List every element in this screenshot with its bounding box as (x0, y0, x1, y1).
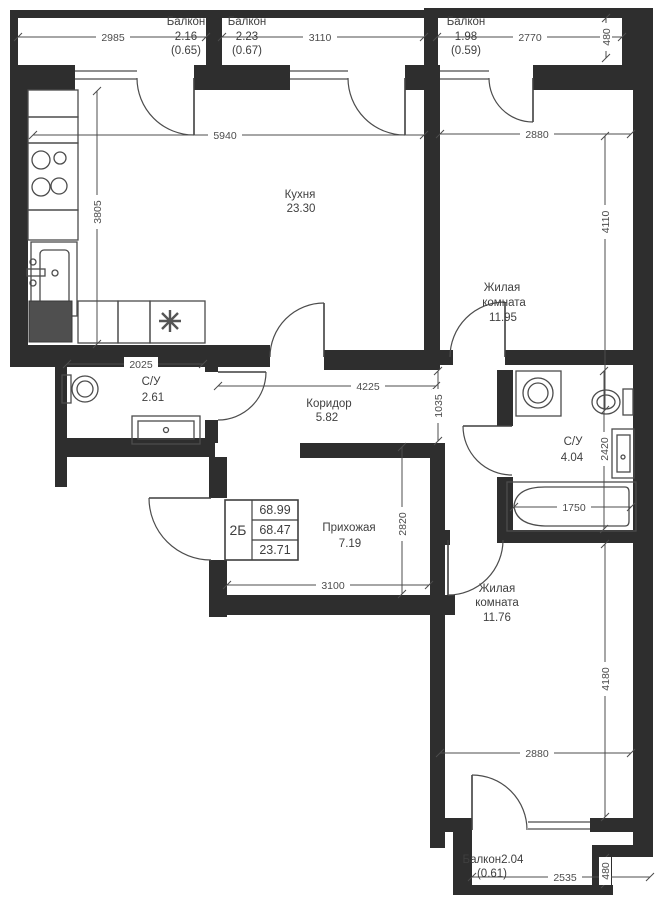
counter-icon (28, 90, 78, 117)
wall-living2-south-2 (590, 818, 653, 832)
svg-text:2880: 2880 (525, 129, 549, 141)
unit-area-living: 23.71 (259, 543, 290, 557)
wall-hallway-right (430, 443, 445, 605)
svg-text:4225: 4225 (356, 381, 380, 393)
svg-text:(0.59): (0.59) (451, 45, 481, 57)
wall-kitchen-south-2 (324, 350, 440, 370)
svg-text:2820: 2820 (397, 512, 409, 536)
wall-balcony-divider-2 (424, 8, 438, 65)
svg-text:1035: 1035 (433, 394, 445, 418)
svg-text:Балкон: Балкон (447, 16, 486, 28)
svg-text:4180: 4180 (600, 667, 612, 691)
svg-text:(0.67): (0.67) (232, 45, 262, 57)
window-kitchen-1 (75, 71, 137, 79)
svg-text:Коридор: Коридор (306, 398, 351, 410)
wall-bath1-bottom (55, 438, 215, 457)
svg-text:2.61: 2.61 (142, 392, 164, 404)
kitchen-fixtures (27, 90, 205, 343)
svg-text:2880: 2880 (525, 748, 549, 760)
svg-text:(0.65): (0.65) (171, 45, 201, 57)
svg-text:2025: 2025 (129, 359, 153, 371)
window-kitchen-2 (290, 71, 348, 79)
wall-balcony4-bottom (453, 885, 613, 895)
counter-icon (118, 301, 150, 343)
washing-machine-icon (516, 371, 561, 416)
unit-info-box: 2Б 68.99 68.47 23.71 (225, 500, 298, 560)
dim-corridor-width: 4225 (214, 379, 440, 393)
room-label-corridor: Коридор 5.82 (306, 398, 351, 424)
svg-text:3100: 3100 (321, 580, 345, 592)
svg-text:1.98: 1.98 (455, 31, 477, 43)
svg-text:1750: 1750 (562, 502, 586, 514)
dim-corridor-opening: 1035 (432, 367, 445, 445)
svg-text:2535: 2535 (553, 872, 577, 884)
counter-icon (28, 117, 78, 143)
toilet-icon (62, 375, 98, 403)
svg-text:2.23: 2.23 (236, 31, 258, 43)
dim-kitchen-height: 3805 (91, 87, 104, 348)
room-label-hallway: Прихожая 7.19 (322, 522, 375, 550)
door-bath1 (218, 372, 266, 420)
door-kitchen-balcony-1 (137, 78, 194, 135)
wall-kitchen-living1 (424, 65, 440, 365)
svg-text:Кухня: Кухня (285, 189, 316, 201)
door-kitchen-balcony-2 (348, 78, 405, 135)
dim-bath2-height: 2420 (598, 367, 611, 533)
door-living1-balcony (489, 78, 533, 122)
wall-bath2-west-2 (497, 477, 513, 533)
wall-outer-right (633, 60, 653, 848)
wall-living1-south-2 (505, 350, 633, 365)
wall-bath2-west-1 (497, 370, 513, 426)
wall-north-1 (10, 65, 75, 90)
appliance-asterisk-icon (150, 301, 205, 343)
stove-icon (28, 143, 78, 210)
counter-icon (78, 301, 118, 343)
floor-plan-canvas: 2985 3110 2770 480 5940 2880 (0, 0, 672, 900)
svg-text:5.82: 5.82 (316, 412, 338, 424)
dim-balcony4-depth: 480 (599, 854, 612, 888)
wall-bath2-south (497, 530, 653, 543)
svg-text:480: 480 (601, 28, 613, 46)
room-label-bath1: С/У 2.61 (142, 376, 165, 404)
svg-text:Жилая: Жилая (479, 583, 515, 595)
unit-area-total: 68.99 (259, 503, 290, 517)
svg-text:Балкон2.04: Балкон2.04 (463, 854, 525, 866)
wall-north-2 (194, 65, 290, 90)
counter-icon (28, 210, 78, 240)
window-living1 (440, 71, 489, 79)
svg-text:Балкон: Балкон (228, 16, 267, 28)
svg-text:Жилая: Жилая (484, 282, 520, 294)
room-label-kitchen: Кухня 23.30 (285, 189, 316, 215)
wall-living1-south-1 (440, 350, 453, 365)
wall-living2-south-1 (438, 818, 472, 832)
dim-living1-height: 4110 (599, 132, 612, 414)
wall-bath1-right-1 (205, 355, 218, 372)
walls (10, 8, 653, 895)
bath1-fixtures (62, 375, 200, 444)
unit-area-reduced: 68.47 (259, 523, 290, 537)
svg-text:комната: комната (475, 597, 519, 609)
svg-text:11.76: 11.76 (483, 612, 511, 624)
room-label-bath2: С/У 4.04 (561, 436, 584, 464)
dim-living2-height: 4180 (599, 540, 612, 821)
door-kitchen-corridor (270, 303, 324, 357)
svg-text:23.30: 23.30 (287, 203, 316, 215)
wall-outer-left (10, 90, 28, 367)
svg-text:С/У: С/У (564, 436, 584, 448)
svg-text:5940: 5940 (213, 130, 237, 142)
wall-hallway-north (300, 443, 440, 458)
dim-hallway-height: 2820 (396, 443, 409, 598)
wall-hallway-bottom (209, 595, 455, 615)
svg-text:4.04: 4.04 (561, 452, 584, 464)
room-label-living2: Жилая комната 11.76 (475, 583, 519, 624)
wall-balcony-divider-1 (206, 10, 222, 65)
svg-text:3110: 3110 (309, 32, 332, 44)
wall-hallway-left-1 (209, 457, 227, 498)
sink-icon (612, 429, 634, 478)
svg-text:(0.61): (0.61) (477, 868, 507, 880)
dim-balcony3-depth: 480 (600, 14, 613, 62)
svg-text:2985: 2985 (101, 32, 125, 44)
room-label-living1: Жилая комната 11.95 (482, 282, 526, 324)
wall-living2-west (430, 605, 445, 848)
window-living2 (528, 822, 590, 829)
door-bath2 (463, 426, 512, 475)
svg-text:3805: 3805 (92, 200, 104, 224)
svg-text:11.95: 11.95 (489, 312, 517, 324)
svg-text:4110: 4110 (600, 211, 612, 234)
door-living2-balcony (472, 775, 527, 830)
fridge-icon (29, 301, 72, 342)
floor-plan: 2985 3110 2770 480 5940 2880 (0, 0, 672, 900)
door-entrance (149, 498, 211, 560)
unit-type: 2Б (230, 522, 247, 538)
svg-text:Балкон: Балкон (167, 16, 206, 28)
svg-text:Прихожая: Прихожая (322, 522, 375, 534)
door-living1-entry (450, 302, 505, 357)
svg-text:2770: 2770 (518, 32, 542, 44)
svg-text:комната: комната (482, 297, 526, 309)
svg-text:7.19: 7.19 (339, 538, 361, 550)
svg-text:2.16: 2.16 (175, 31, 197, 43)
dim-bathtub-width: 1750 (510, 500, 635, 514)
svg-text:2420: 2420 (599, 437, 611, 461)
dim-kitchen-width: 5940 (29, 128, 428, 142)
toilet-icon (592, 389, 633, 415)
svg-text:480: 480 (600, 862, 612, 880)
svg-text:С/У: С/У (142, 376, 162, 388)
